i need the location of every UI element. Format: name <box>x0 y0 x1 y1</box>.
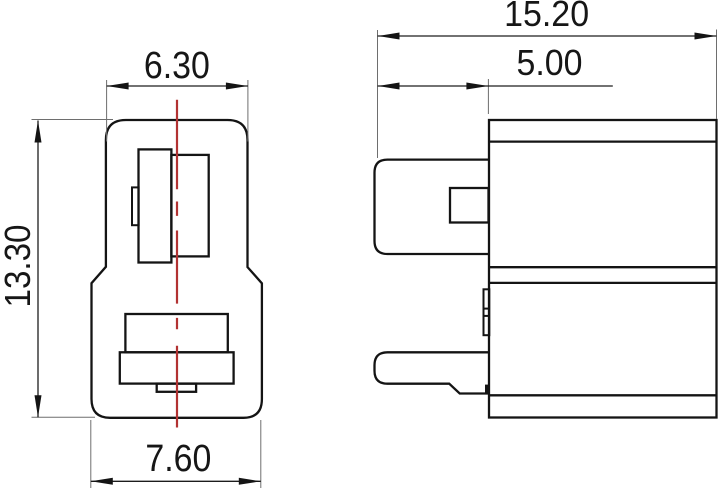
svg-text:7.60: 7.60 <box>145 438 211 480</box>
svg-text:5.00: 5.00 <box>517 42 583 83</box>
svg-text:13.30: 13.30 <box>0 225 38 308</box>
svg-text:15.20: 15.20 <box>504 0 589 34</box>
svg-text:6.30: 6.30 <box>144 45 210 87</box>
